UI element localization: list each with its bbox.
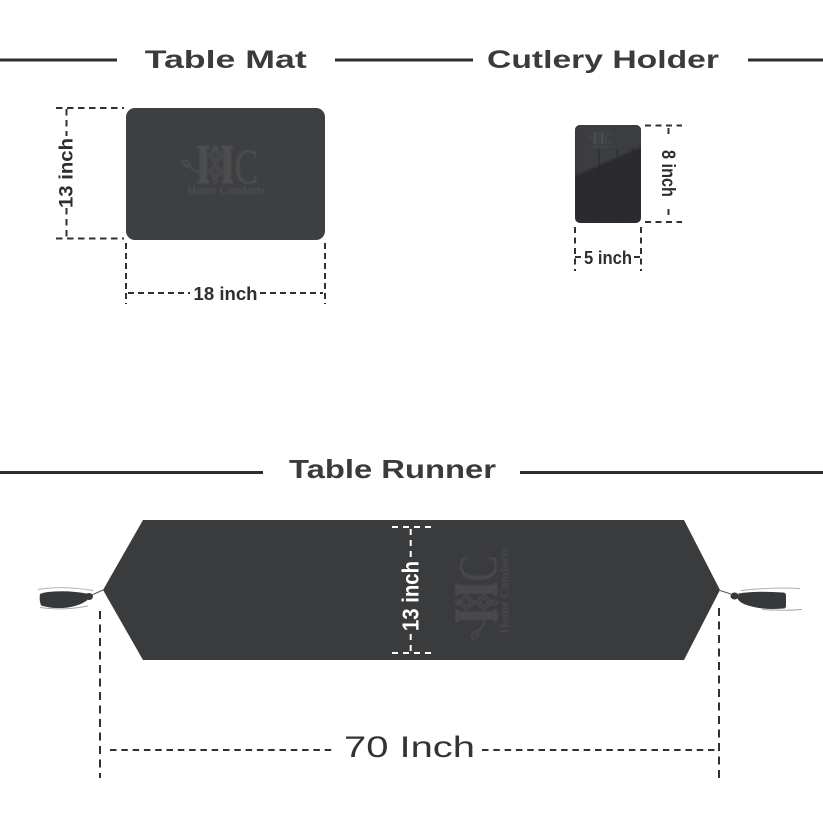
svg-text:13 inch: 13 inch	[56, 138, 78, 208]
svg-text:Table Mat: Table Mat	[145, 46, 308, 74]
svg-text:Table Runner: Table Runner	[289, 454, 496, 484]
svg-text:5 inch: 5 inch	[584, 247, 632, 268]
svg-text:8 inch: 8 inch	[657, 150, 679, 197]
svg-text:70 Inch: 70 Inch	[344, 731, 475, 764]
svg-text:13 inch: 13 inch	[398, 561, 424, 631]
svg-text:18 inch: 18 inch	[194, 283, 258, 304]
svg-text:Cutlery Holder: Cutlery Holder	[487, 46, 719, 74]
